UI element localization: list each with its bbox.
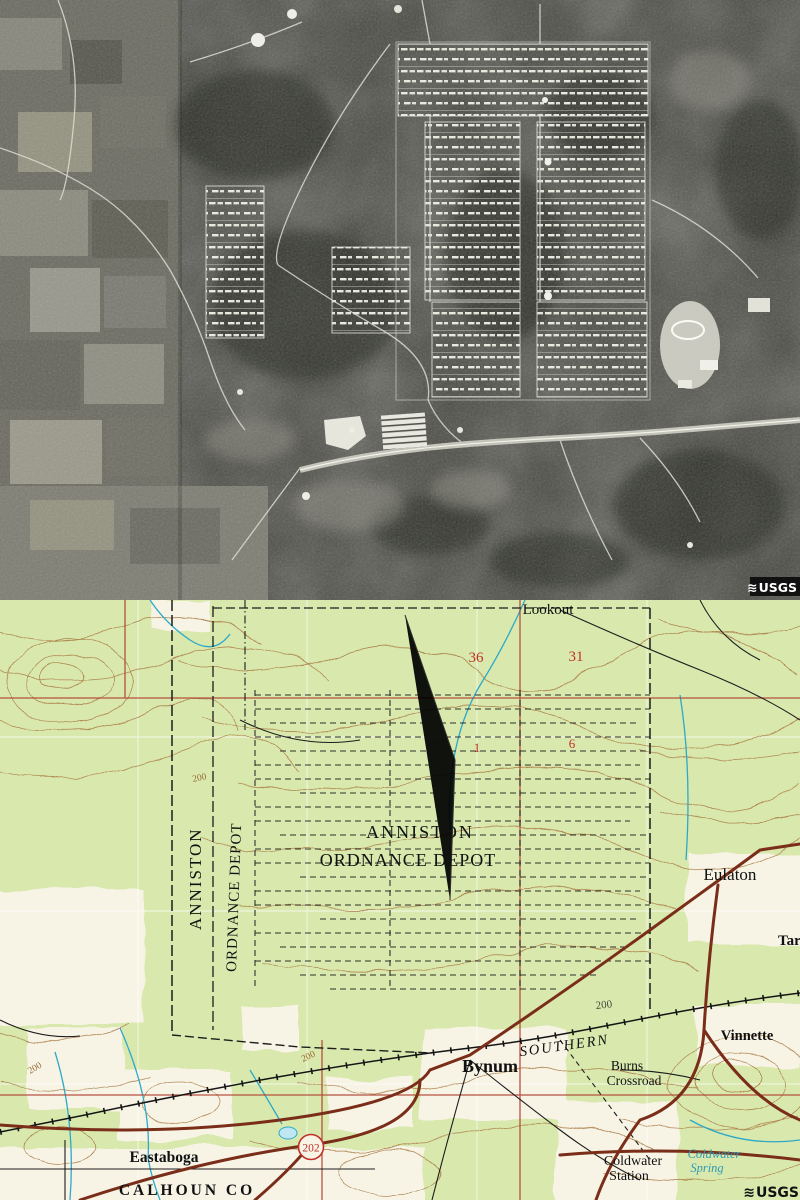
label-section-6: 6 <box>569 736 576 751</box>
label-tar-clipped: Tar <box>778 933 800 949</box>
label-coldwater-station-line2: Station <box>609 1169 649 1184</box>
usgs-wave-icon: ≋ <box>743 1185 755 1200</box>
label-depot-vertical-line1: ANNISTON <box>186 827 205 930</box>
label-depot-line1: ANNISTON <box>366 822 474 842</box>
label-contour-200-d: 200 <box>595 998 613 1012</box>
topo-map-panel: 202 Lookout 36 31 1 6 ANNISTON ORDNANCE … <box>0 600 800 1200</box>
usgs-wave-icon: ≋ <box>747 580 757 595</box>
label-coldwater-spring-line2: Spring <box>690 1161 723 1175</box>
label-burns-line1: Burns <box>611 1058 643 1073</box>
label-coldwater-spring-line1: Coldwater <box>688 1147 741 1161</box>
label-lookout: Lookout <box>523 602 575 618</box>
label-eulaton: Eulaton <box>704 865 757 884</box>
usgs-logo-aerial: ≋USGS <box>747 577 800 596</box>
label-burns-line2: Crossroad <box>607 1073 662 1088</box>
svg-text:≋USGS: ≋USGS <box>747 580 797 595</box>
label-calhoun-county: CALHOUN CO <box>119 1182 255 1199</box>
route-202-shield: 202 <box>299 1135 324 1160</box>
label-section-1: 1 <box>474 740 481 755</box>
aerial-photo-panel: ≋USGS <box>0 0 800 600</box>
usgs-comparison-image: ≋USGS <box>0 0 800 1200</box>
label-depot-line2: ORDNANCE DEPOT <box>320 850 497 870</box>
label-section-36: 36 <box>469 650 485 666</box>
usgs-logo-topo: ≋USGS <box>743 1185 799 1200</box>
label-eastaboga: Eastaboga <box>130 1149 199 1166</box>
label-coldwater-station-line1: Coldwater <box>604 1154 663 1169</box>
label-vinnette: Vinnette <box>721 1028 774 1044</box>
label-bynum: Bynum <box>462 1056 518 1076</box>
label-section-31: 31 <box>569 649 584 665</box>
pond <box>279 1127 297 1139</box>
route-202-label: 202 <box>302 1143 320 1155</box>
